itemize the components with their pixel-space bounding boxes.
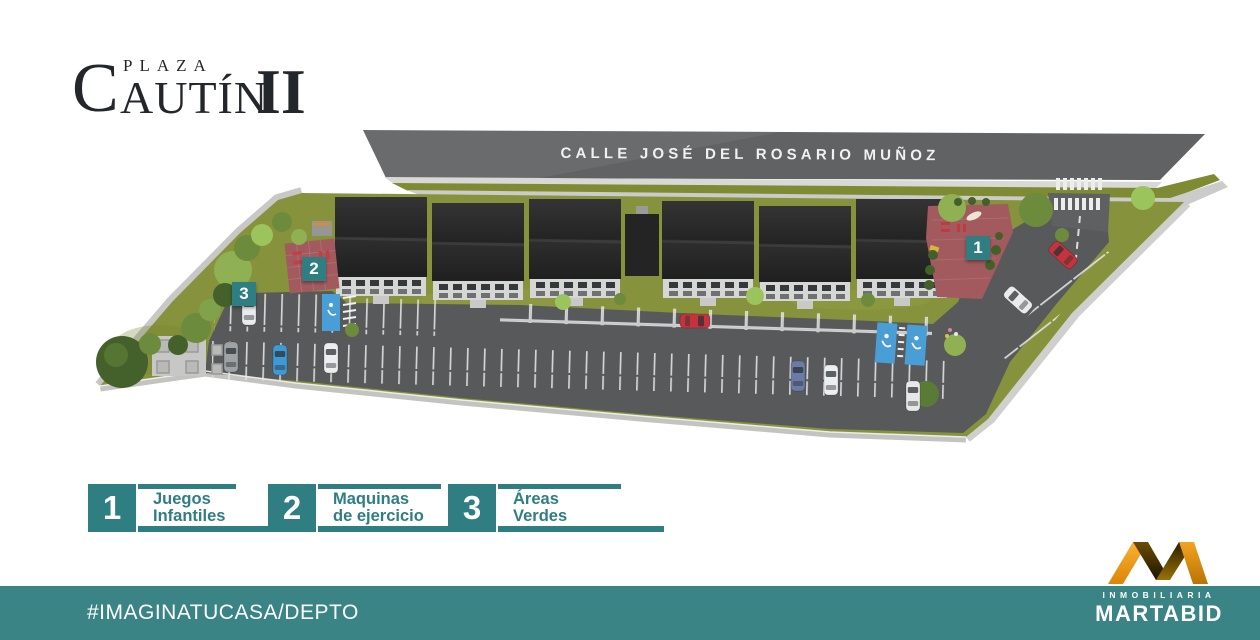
map-marker-2: 2 [302, 257, 326, 281]
developer-logo: INMOBILIARIA MARTABID [1086, 590, 1232, 627]
marketing-page: PLAZA C AUTÍN II CALLE JOSÉ DEL ROSARIO … [0, 0, 1260, 640]
legend-label: Juegos Infantiles [138, 484, 270, 532]
building-connector-roof [636, 206, 648, 214]
legend-number-badge: 2 [268, 484, 316, 532]
building-block [335, 197, 427, 304]
legend-item-areas-verdes: 3 Áreas Verdes [448, 484, 664, 532]
car [273, 345, 287, 375]
brand-logo: PLAZA C AUTÍN II [70, 52, 350, 128]
map-marker-1: 1 [966, 236, 990, 260]
building-connector [625, 214, 659, 276]
car [680, 314, 710, 328]
building-block [529, 199, 621, 306]
car [324, 343, 338, 373]
martabid-m-icon [1108, 542, 1208, 584]
developer-subtitle: INMOBILIARIA [1086, 590, 1232, 600]
brand-initial: C [72, 54, 119, 124]
building-block [432, 203, 524, 308]
legend-number-badge: 1 [88, 484, 136, 532]
building-block [662, 201, 754, 306]
car [824, 365, 838, 395]
legend-label: Áreas Verdes [498, 484, 664, 532]
car [906, 381, 920, 411]
brand-name: AUTÍN [120, 75, 268, 121]
brand-numeral: II [256, 60, 306, 124]
building-block [759, 206, 851, 309]
legend-item-juegos-infantiles: 1 Juegos Infantiles [88, 484, 270, 532]
developer-name: MARTABID [1086, 601, 1232, 627]
legend-number-badge: 3 [448, 484, 496, 532]
campaign-hashtag: #IMAGINATUCASA/DEPTO [87, 586, 359, 640]
footer-bar: #IMAGINATUCASA/DEPTO [0, 586, 1260, 640]
car [224, 342, 238, 372]
car [791, 361, 805, 391]
map-marker-3: 3 [232, 282, 256, 306]
